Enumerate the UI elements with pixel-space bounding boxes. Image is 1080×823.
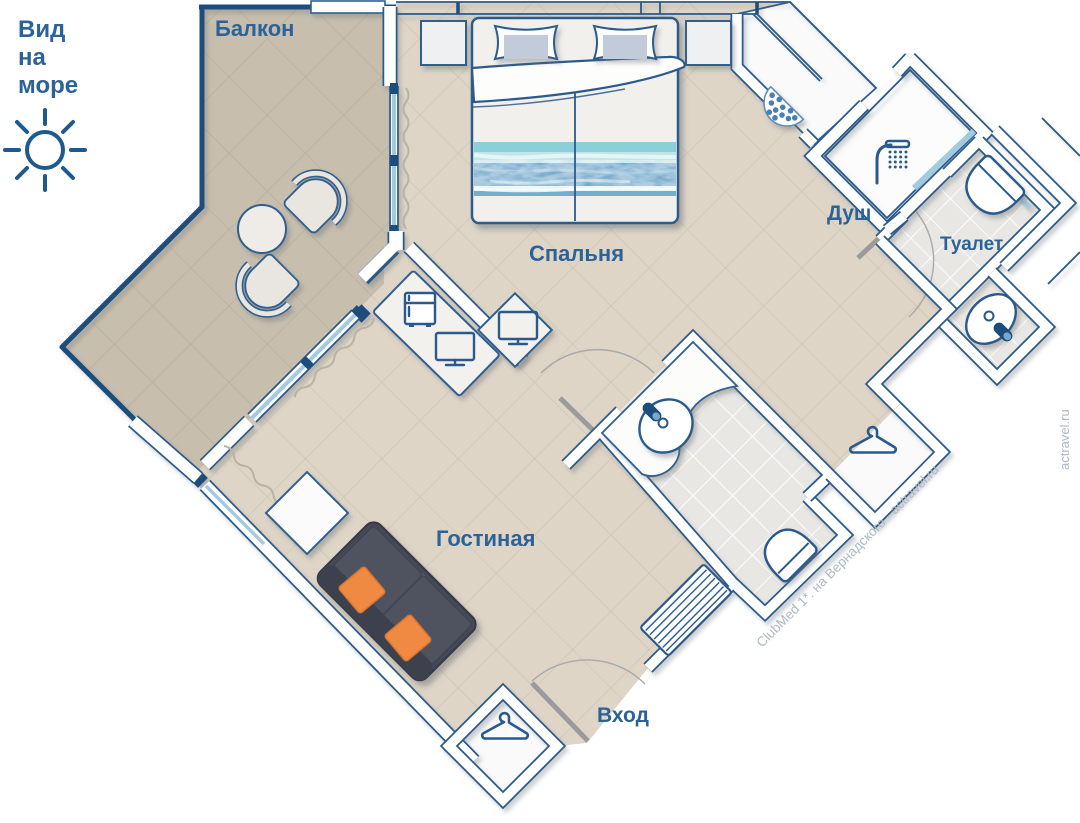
- svg-text:Балкон: Балкон: [215, 16, 294, 41]
- svg-text:Душ: Душ: [827, 202, 871, 225]
- svg-text:Вид: Вид: [18, 16, 65, 43]
- svg-text:Гостиная: Гостиная: [436, 526, 535, 551]
- svg-text:Спальня: Спальня: [529, 241, 624, 266]
- svg-text:Туалет: Туалет: [940, 234, 1003, 255]
- svg-text:море: море: [18, 72, 78, 99]
- svg-text:Вход: Вход: [597, 704, 649, 727]
- svg-text:на: на: [18, 44, 46, 71]
- svg-text:actravel.ru: actravel.ru: [1057, 409, 1072, 470]
